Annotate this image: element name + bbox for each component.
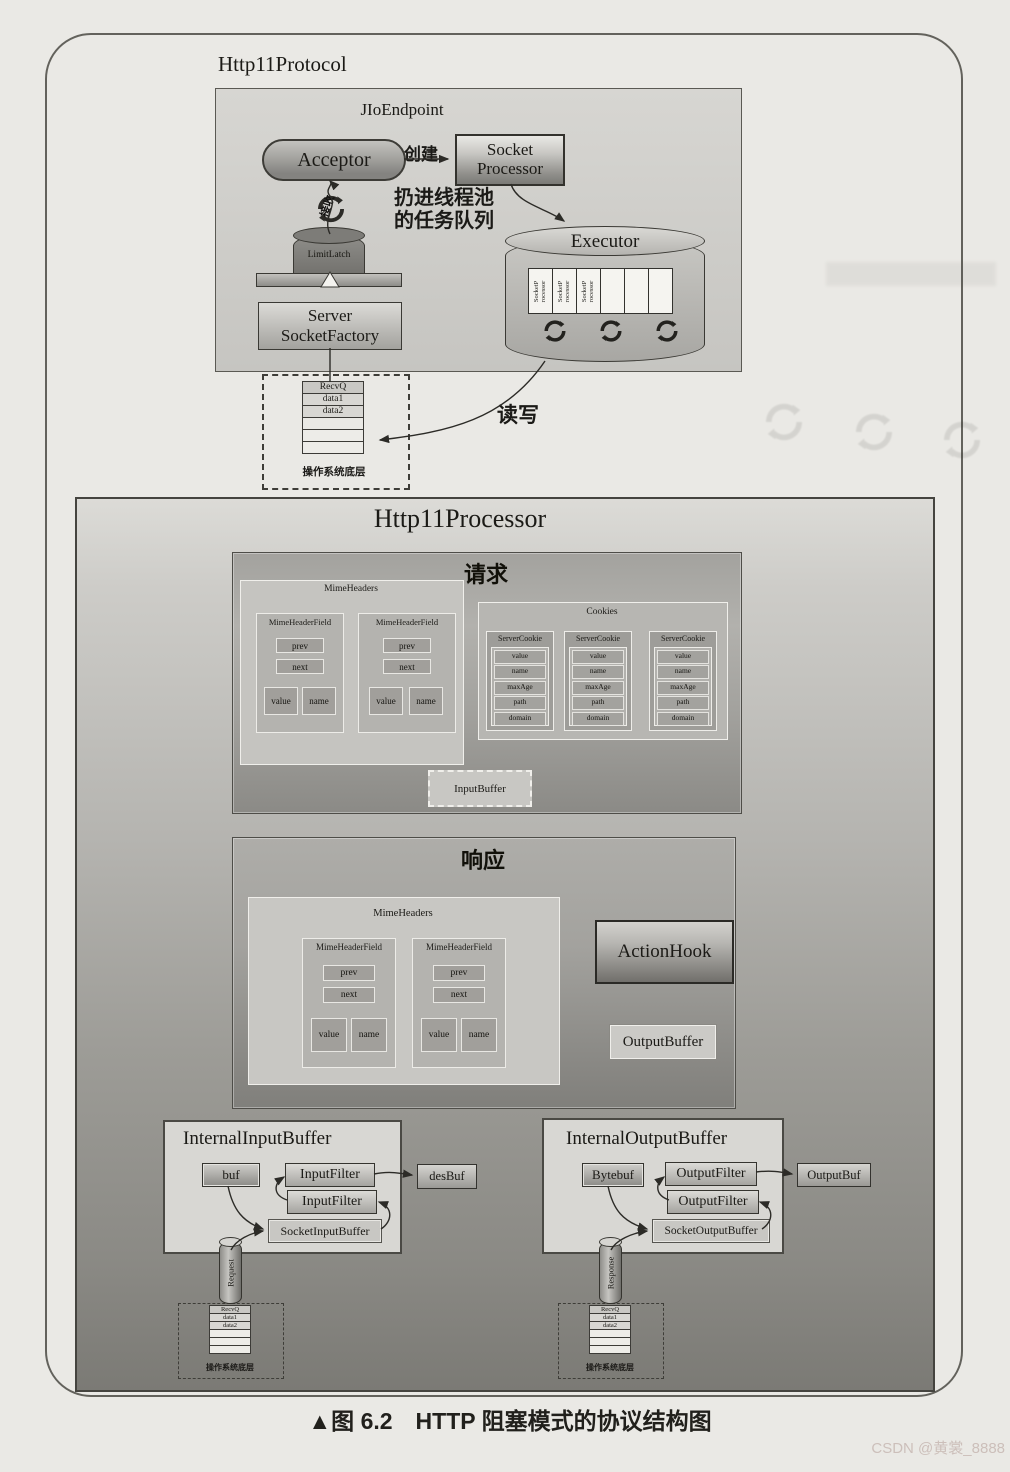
servercookie-title: ServerCookie [565,634,631,643]
os-layer-label: 操作系统底层 [560,1362,660,1373]
name-cell: name [351,1018,387,1052]
ssf-line1: Server [308,306,352,326]
socket-input-buffer-label: SocketInputBuffer [280,1224,369,1239]
os-recv-table: RecvQ data1 data2 [302,382,364,454]
mimeheaderfield-box: MimeHeaderField prev next value name [412,938,506,1068]
cookie-field: domain [657,712,709,726]
mimeheaderfield-box: MimeHeaderField prev next value name [302,938,396,1068]
input-filter-label: InputFilter [302,1194,362,1210]
cookie-field: maxAge [572,681,624,695]
task-slot [648,268,673,314]
recycle-icon [540,316,570,346]
servercookie-rows: value name maxAge path domain [569,647,627,726]
socket-processor-node: Socket Processor [455,134,565,186]
cookie-field: value [657,650,709,664]
response-mimeheaders-panel [248,897,560,1085]
acceptor-node: Acceptor [262,139,406,181]
request-mimeheaders-title: MimeHeaders [240,584,462,594]
task-slot [624,268,649,314]
task-slot: SocketP rocessor [552,268,577,314]
output-filter-label: OutputFilter [678,1194,747,1210]
prev-link: prev [323,965,375,981]
servercookie-box: ServerCookie value name maxAge path doma… [564,631,632,731]
read-write-label: 读写 [497,399,539,429]
mimeheaderfield-box: MimeHeaderField prev next value name [358,613,456,733]
request-pipe-label-wrap: Request [219,1242,242,1304]
value-cell: value [311,1018,347,1052]
mimeheaderfield-title: MimeHeaderField [257,617,343,627]
ghost-recycle-icon [936,414,988,466]
os-recv-table: RecvQ data1 data2 [209,1306,251,1354]
bytebuf-box: Bytebuf [582,1163,644,1187]
scanned-book-page: Http11Protocol JIoEndpoint Acceptor 创建 S… [0,0,1010,1472]
output-filter-label: OutputFilter [676,1166,745,1182]
actionhook-label: ActionHook [618,941,712,963]
figure-caption: ▲图 6.2 HTTP 阻塞模式的协议结构图 [270,1402,750,1436]
next-link: next [383,659,431,674]
request-pipe-label: Request [226,1259,236,1286]
ghost-recycle-icon [848,406,900,458]
cookie-field: path [657,696,709,710]
outputbuffer-label: OutputBuffer [623,1034,704,1051]
create-label: 创建 [404,140,438,165]
task-slot: SocketP rocessor [576,268,601,314]
os-row [589,1345,631,1354]
cookie-field: value [494,650,546,664]
protocol-title: Http11Protocol [218,52,347,77]
name-cell: name [409,687,443,715]
prev-link: prev [276,638,324,653]
servercookie-box: ServerCookie value name maxAge path doma… [486,631,554,731]
internal-input-buffer-title: InternalInputBuffer [183,1128,331,1150]
value-cell: value [369,687,403,715]
mimeheaderfield-title: MimeHeaderField [359,617,455,627]
ssf-line2: SocketFactory [281,326,379,346]
os-recv-table: RecvQ data1 data2 [589,1306,631,1354]
response-mimeheaders-title: MimeHeaders [248,908,558,919]
watermark: CSDN @黄裳_8888 [815,1437,1005,1458]
queue-label-line1: 扔进线程池 [394,187,494,210]
input-filter-box: InputFilter [287,1190,377,1214]
servercookie-rows: value name maxAge path domain [654,647,712,726]
inputbuffer-label: InputBuffer [454,783,506,795]
socket-input-buffer-box: SocketInputBuffer [268,1219,382,1243]
next-link: next [276,659,324,674]
next-link: next [433,987,485,1003]
cookie-field: value [572,650,624,664]
value-cell: value [421,1018,457,1052]
latch-bar [256,273,402,287]
http11processor-title: Http11Processor [260,504,660,534]
cookie-field: name [494,665,546,679]
name-cell: name [461,1018,497,1052]
queue-label: 扔进线程池 的任务队列 [394,187,494,233]
outputbuffer-box: OutputBuffer [610,1025,716,1059]
mimeheaderfield-box: MimeHeaderField prev next value name [256,613,344,733]
prev-link: prev [383,638,431,653]
buf-label: buf [222,1167,239,1183]
cookie-field: maxAge [494,681,546,695]
servercookie-title: ServerCookie [487,634,553,643]
acceptor-label: Acceptor [297,149,370,172]
cookie-field: path [494,696,546,710]
limitlatch-lid [293,227,365,244]
cookies-title: Cookies [478,607,726,617]
os-layer-label: 操作系统底层 [266,464,402,479]
servercookie-title: ServerCookie [650,634,716,643]
desbuf-box: desBuf [417,1164,477,1189]
cookie-field: maxAge [657,681,709,695]
input-filter-label: InputFilter [300,1167,360,1183]
input-filter-box: InputFilter [285,1163,375,1187]
socket-output-buffer-box: SocketOutputBuffer [652,1219,770,1243]
socket-processor-line2: Processor [477,160,543,179]
output-filter-box: OutputFilter [667,1190,759,1214]
socket-processor-line1: Socket [487,141,533,160]
output-filter-box: OutputFilter [665,1162,757,1186]
outputbuf-box: OutputBuf [797,1163,871,1187]
prev-link: prev [433,965,485,981]
response-title: 响应 [232,843,734,875]
actionhook-box: ActionHook [595,920,734,984]
response-pipe-label: Response [606,1257,616,1290]
cookie-field: domain [494,712,546,726]
name-cell: name [302,687,336,715]
ghost-bleedthrough-text [826,262,996,286]
jioendpoint-title: JIoEndpoint [262,100,542,120]
limitlatch-label: LimitLatch [293,250,365,260]
bytebuf-label: Bytebuf [592,1167,634,1183]
cookie-field: name [572,665,624,679]
task-slot [600,268,625,314]
task-slot: SocketP rocessor [528,268,553,314]
executor-title: Executor [505,231,705,253]
os-row [302,441,364,454]
server-socket-factory-node: Server SocketFactory [258,302,402,350]
inputbuffer-box: InputBuffer [428,770,532,807]
os-layer-label: 操作系统底层 [180,1362,280,1373]
cookie-field: domain [572,712,624,726]
response-pipe-label-wrap: Response [599,1242,622,1304]
ghost-recycle-icon [758,396,810,448]
os-row [209,1345,251,1354]
cookie-field: path [572,696,624,710]
mimeheaderfield-title: MimeHeaderField [303,942,395,952]
recycle-icon [596,316,626,346]
buf-box: buf [202,1163,260,1187]
servercookie-box: ServerCookie value name maxAge path doma… [649,631,717,731]
internal-output-buffer-title: InternalOutputBuffer [566,1128,727,1150]
executor-task-slots: SocketP rocessor SocketP rocessor Socket… [528,268,673,314]
cookie-field: name [657,665,709,679]
next-link: next [323,987,375,1003]
mimeheaderfield-title: MimeHeaderField [413,942,505,952]
queue-label-line2: 的任务队列 [394,210,494,233]
outputbuf-label: OutputBuf [807,1168,860,1183]
socket-output-buffer-label: SocketOutputBuffer [664,1225,757,1237]
servercookie-rows: value name maxAge path domain [491,647,549,726]
value-cell: value [264,687,298,715]
recycle-icon [652,316,682,346]
desbuf-label: desBuf [429,1169,464,1184]
